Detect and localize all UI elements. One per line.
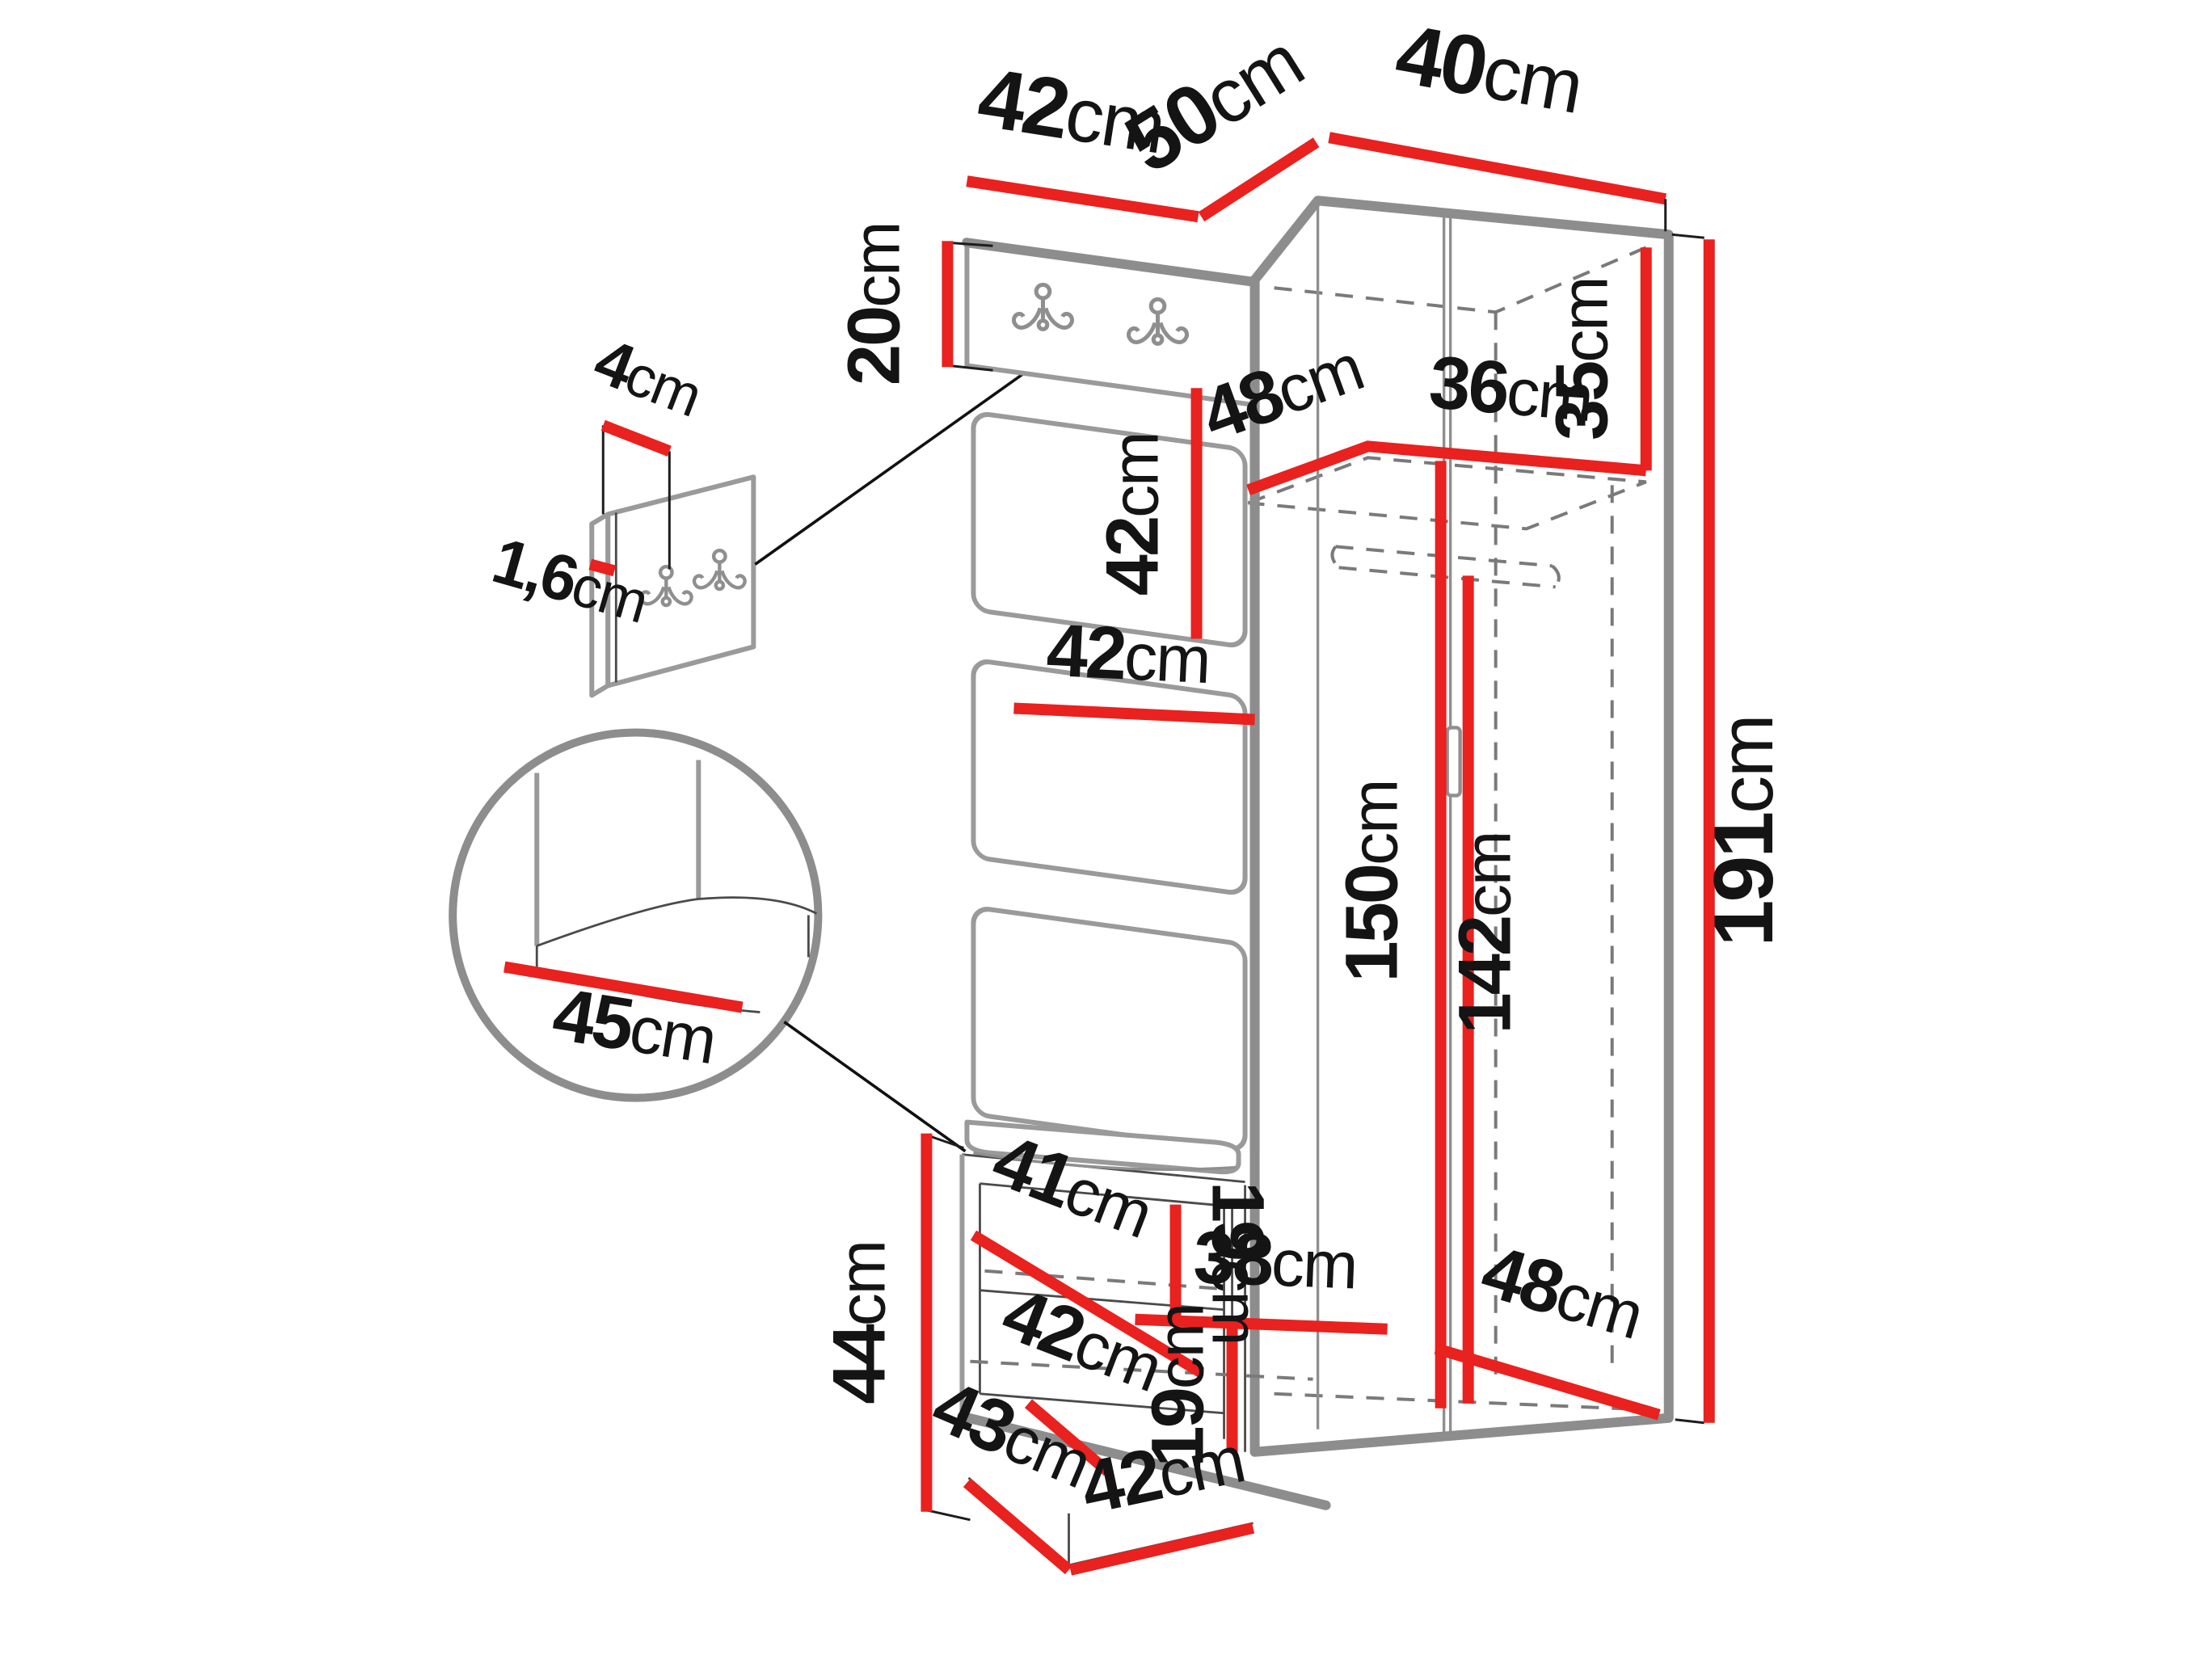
dim-door-height-label: 150cm	[1330, 781, 1414, 983]
dim-cushion-height-label: 42cm	[1091, 433, 1174, 596]
furniture-dimension-diagram: 4cm 1,6cm	[0, 0, 2212, 1659]
dim-rod-height-label: 142cm	[1443, 832, 1527, 1034]
door-handle	[1447, 727, 1460, 795]
dim-total-height-label: 191cm	[1697, 716, 1791, 947]
dim-bench-shelf-width-label: 38cm	[1192, 1215, 1358, 1305]
dim-bench-height-label: 44cm	[817, 1241, 900, 1404]
dim-top-side-width-label: 40cm	[1389, 7, 1590, 132]
diagram-stage: 4cm 1,6cm	[0, 0, 2212, 1659]
dim-interior-top-height-label: 35cm	[1540, 277, 1624, 440]
dim-detail-width-line	[603, 425, 669, 451]
dim-detail-width-label: 4cm	[585, 324, 712, 430]
hook-panel-detail: 4cm 1,6cm	[485, 324, 1023, 695]
dim-top-side-width-line	[1329, 137, 1666, 199]
seat-zoom-detail: 45cm	[453, 732, 965, 1151]
callout-line	[784, 1022, 965, 1152]
dim-hook-panel-height-label: 20cm	[832, 222, 915, 385]
cushion-panel	[973, 907, 1245, 1152]
